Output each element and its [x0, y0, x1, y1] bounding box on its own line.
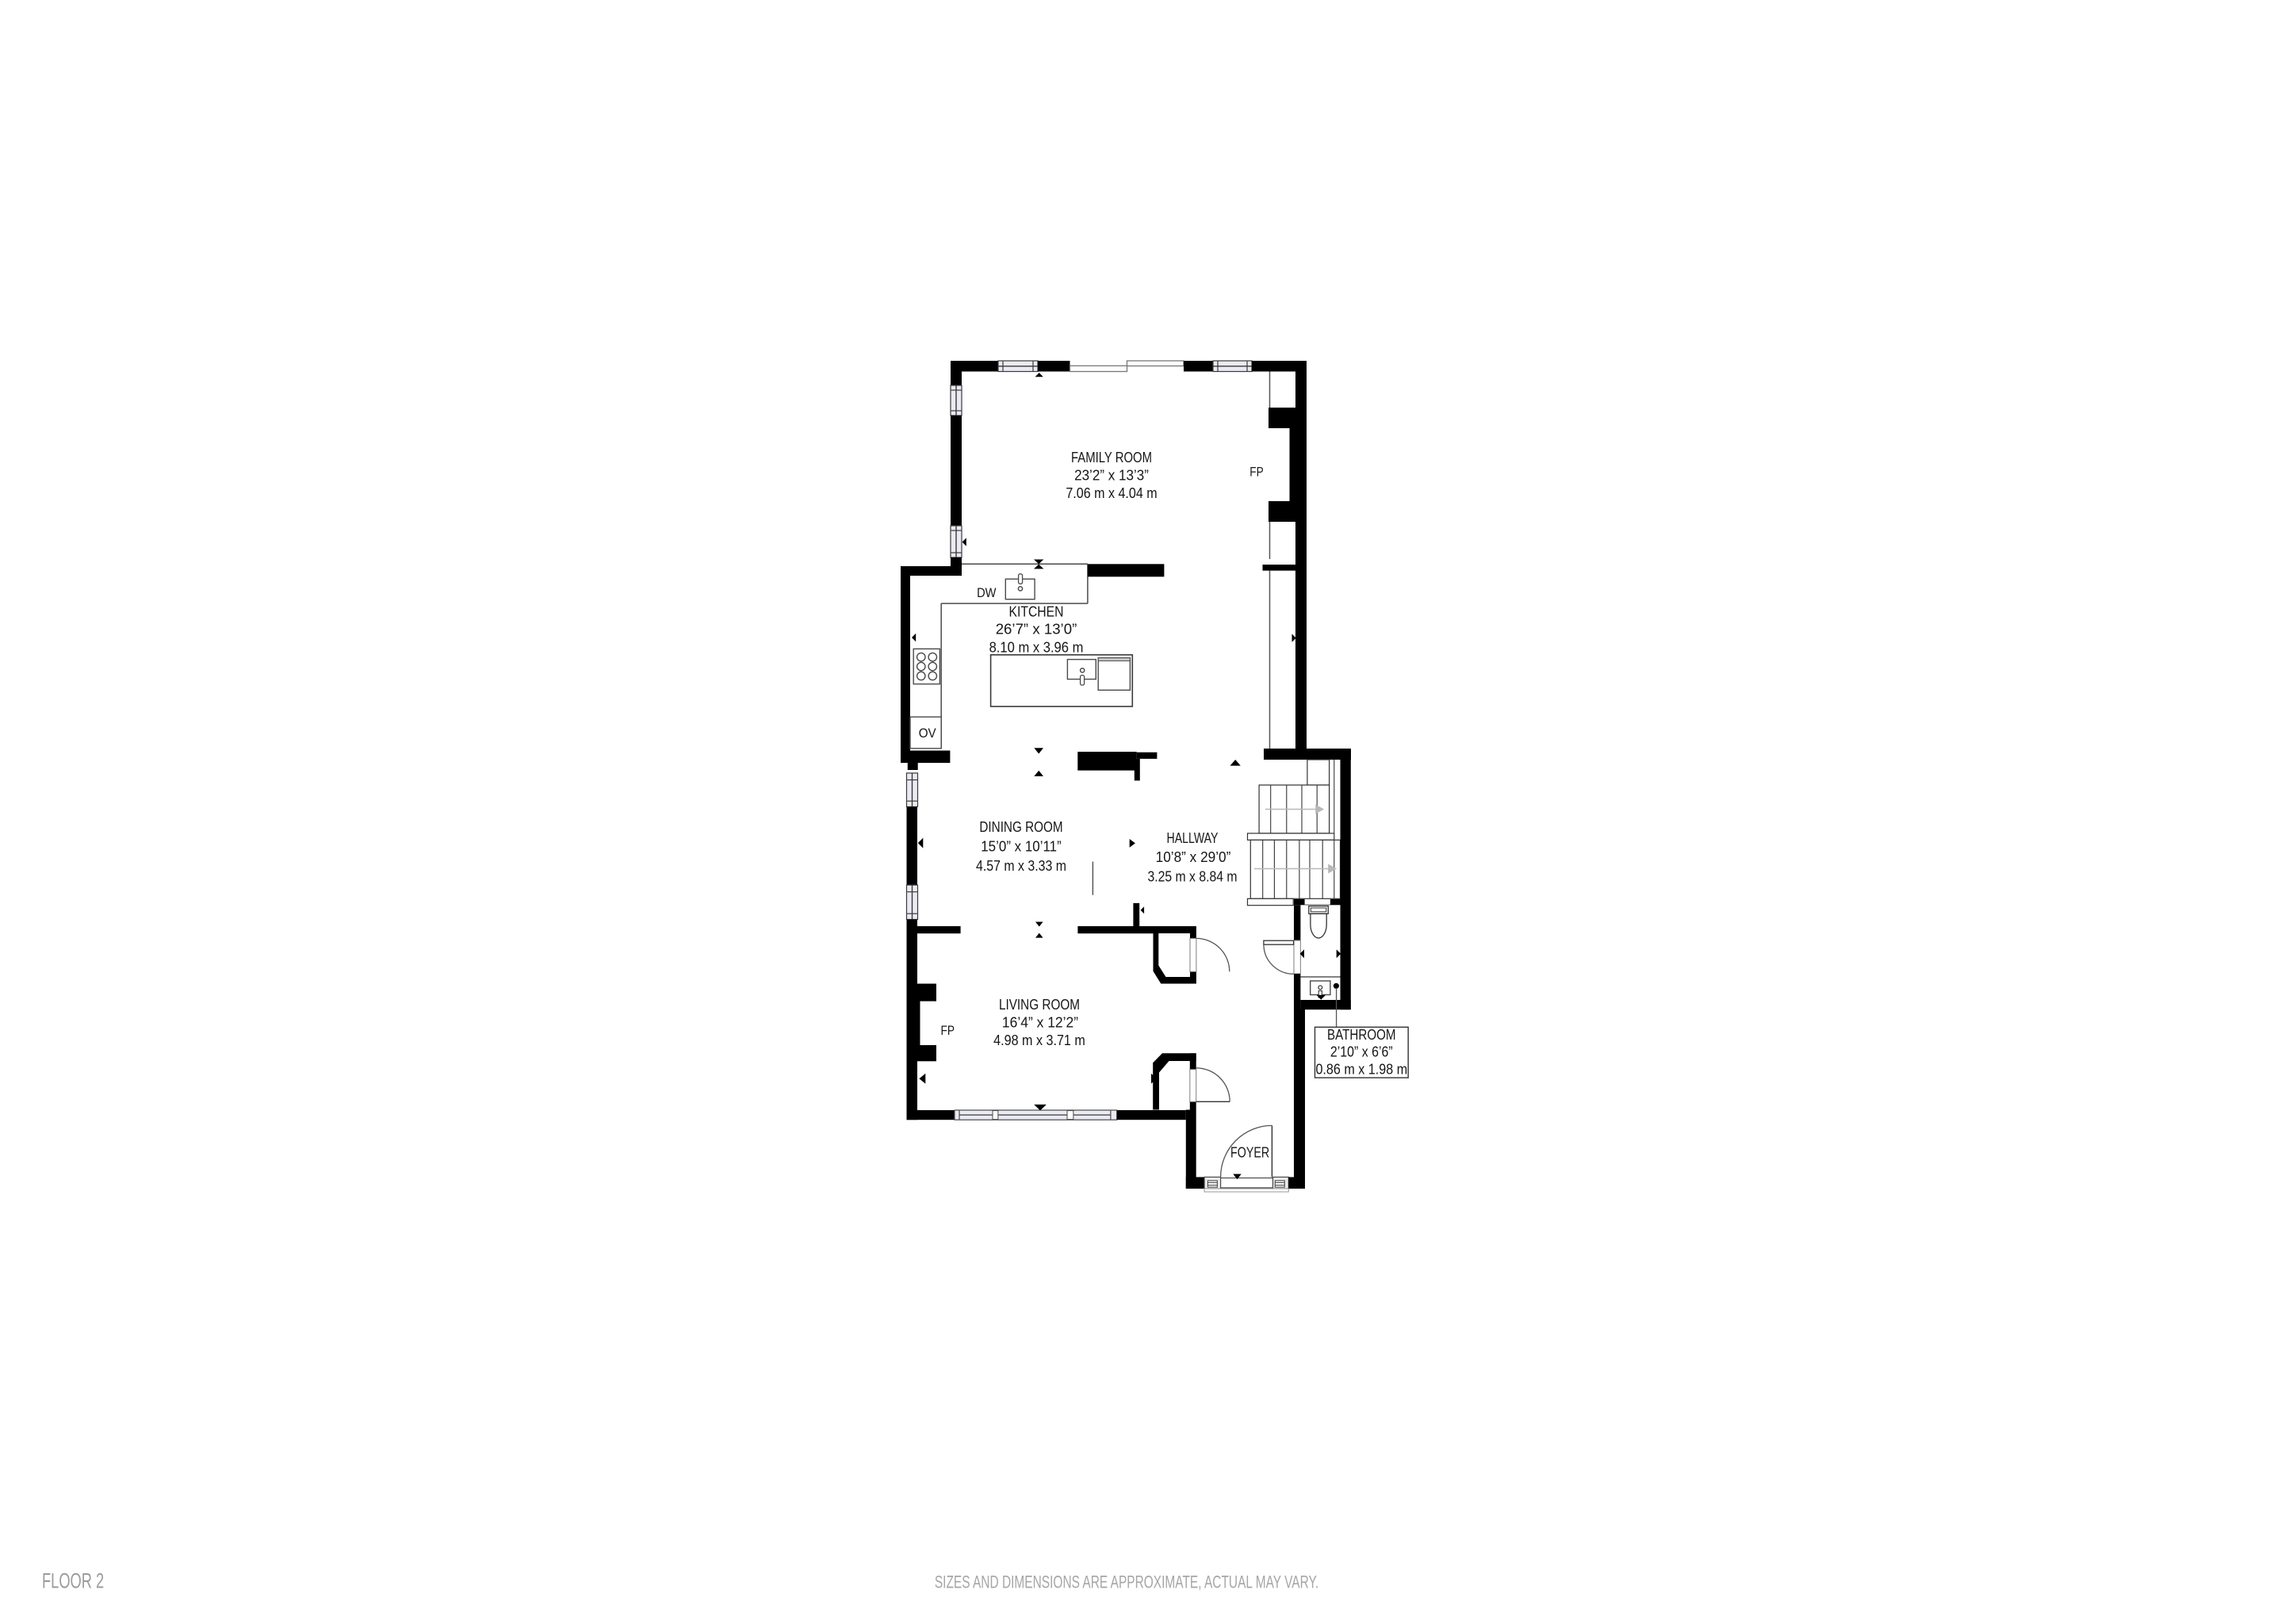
svg-text:3.25 m x 8.84 m: 3.25 m x 8.84 m: [1148, 868, 1238, 885]
svg-text:BATHROOM: BATHROOM: [1327, 1026, 1396, 1043]
svg-text:4.98 m x 3.71 m: 4.98 m x 3.71 m: [993, 1032, 1085, 1048]
svg-text:DINING ROOM: DINING ROOM: [979, 818, 1062, 835]
svg-text:HALLWAY: HALLWAY: [1167, 829, 1219, 846]
svg-text:OV: OV: [919, 726, 937, 741]
svg-text:7.06 m x 4.04 m: 7.06 m x 4.04 m: [1066, 485, 1157, 501]
svg-text:FOYER: FOYER: [1230, 1143, 1269, 1160]
svg-text:10’8” x 29’0”: 10’8” x 29’0”: [1156, 848, 1231, 865]
svg-text:LIVING ROOM: LIVING ROOM: [999, 996, 1080, 1013]
svg-text:2’10” x 6’6”: 2’10” x 6’6”: [1330, 1044, 1393, 1060]
svg-text:23’2” x 13’3”: 23’2” x 13’3”: [1074, 467, 1149, 484]
svg-text:26’7” x 13’0”: 26’7” x 13’0”: [996, 621, 1077, 638]
svg-text:FLOOR 2: FLOOR 2: [42, 1569, 104, 1593]
svg-text:8.10 m x 3.96 m: 8.10 m x 3.96 m: [989, 639, 1084, 656]
svg-text:4.57 m x 3.33 m: 4.57 m x 3.33 m: [976, 857, 1066, 874]
svg-text:SIZES AND DIMENSIONS ARE APPRO: SIZES AND DIMENSIONS ARE APPROXIMATE, AC…: [935, 1572, 1318, 1592]
svg-text:0.86 m x 1.98 m: 0.86 m x 1.98 m: [1315, 1061, 1407, 1078]
svg-text:KITCHEN: KITCHEN: [1009, 603, 1064, 620]
svg-text:FAMILY ROOM: FAMILY ROOM: [1071, 449, 1152, 465]
svg-text:FP: FP: [941, 1023, 955, 1038]
svg-text:15’0” x 10’11”: 15’0” x 10’11”: [981, 838, 1062, 855]
svg-text:DW: DW: [977, 585, 996, 600]
svg-text:FP: FP: [1249, 465, 1263, 480]
svg-text:16’4” x 12’2”: 16’4” x 12’2”: [1002, 1014, 1078, 1031]
